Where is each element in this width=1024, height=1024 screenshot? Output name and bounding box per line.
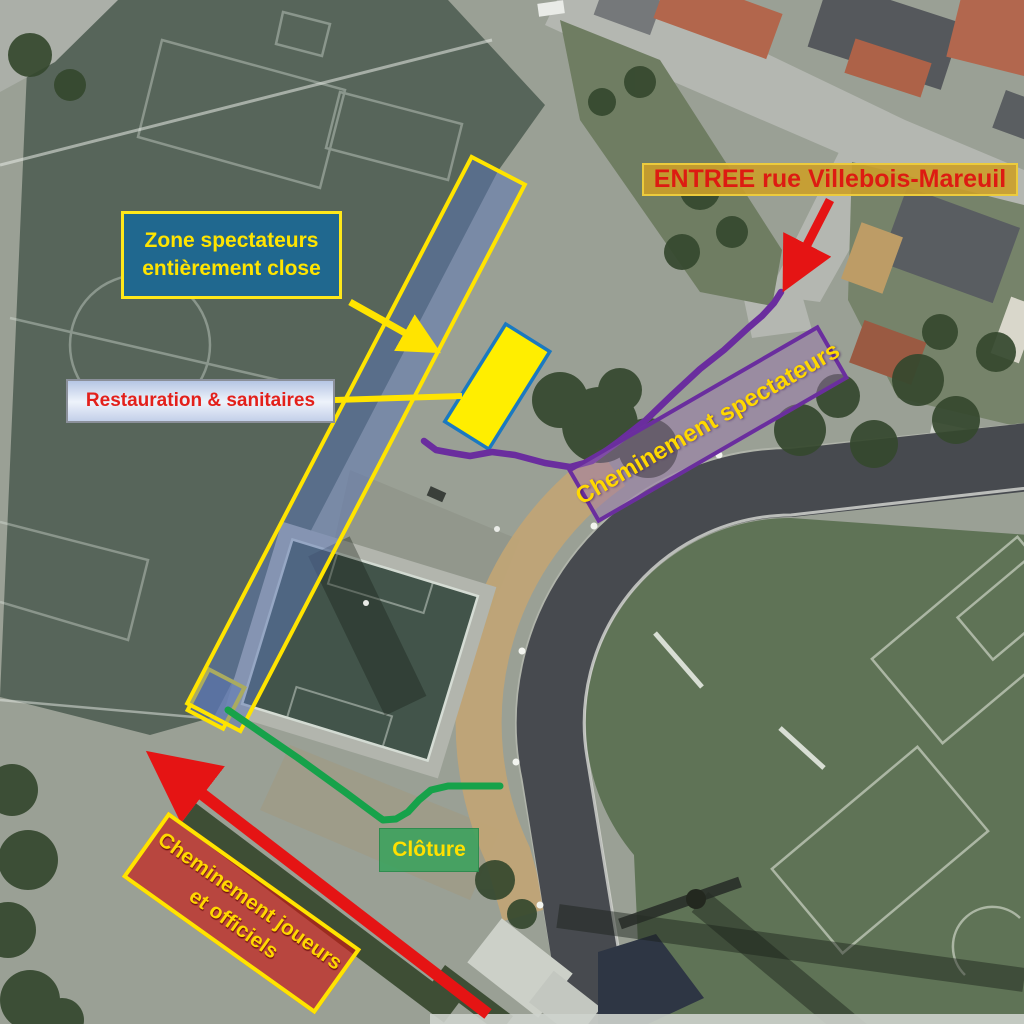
food-area-overlay	[445, 324, 550, 449]
spectator-zone-label: Zone spectateurs entièrement close	[121, 211, 342, 299]
catering-label-text: Restauration & sanitaires	[86, 390, 315, 412]
entrance-banner-text: ENTREE rue Villebois-Mareuil	[654, 165, 1006, 194]
aerial-map: Zone spectateurs entièrement close Resta…	[0, 0, 1024, 1024]
fence-label-text: Clôture	[392, 838, 466, 862]
spectator-zone-label-line2: entièrement close	[142, 255, 321, 283]
entrance-arrow	[790, 200, 830, 278]
fence-line	[228, 710, 500, 820]
entrance-banner: ENTREE rue Villebois-Mareuil	[642, 163, 1018, 196]
spectator-zone-label-line1: Zone spectateurs	[145, 227, 319, 255]
catering-label: Restauration & sanitaires	[66, 379, 335, 423]
fence-label: Clôture	[379, 828, 479, 872]
catering-pointer-line	[335, 396, 462, 400]
